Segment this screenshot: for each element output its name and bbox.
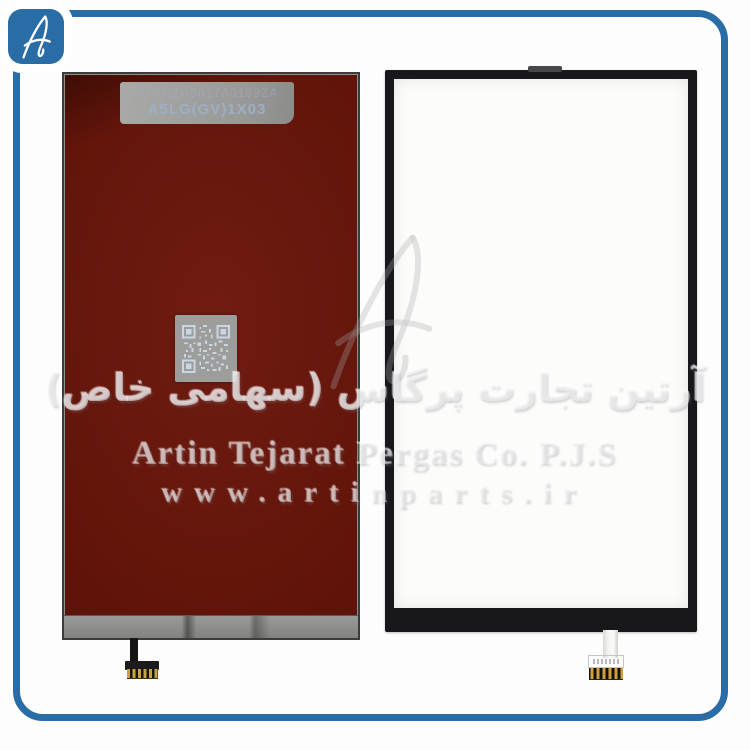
product-photo: Y7CRZG5017A0199ZA A5LG(GV)1X03	[0, 0, 750, 750]
right-flex-pins	[589, 668, 623, 680]
backlight-front-panel	[385, 70, 697, 632]
backlight-back-panel: Y7CRZG5017A0199ZA A5LG(GV)1X03	[62, 72, 360, 640]
panel-top-tab	[528, 66, 562, 72]
logo-monogram-icon	[17, 14, 55, 60]
serial-label-line1: Y7CRZG5017A0199ZA	[136, 87, 278, 101]
white-diffuser	[394, 79, 688, 608]
serial-label: Y7CRZG5017A0199ZA A5LG(GV)1X03	[120, 82, 294, 124]
qr-code-icon	[182, 325, 230, 373]
left-flex-pins	[127, 669, 158, 679]
right-flex-cable	[603, 630, 618, 658]
metal-bottom-strip	[64, 615, 358, 638]
artin-logo	[8, 9, 64, 64]
serial-label-line2: A5LG(GV)1X03	[148, 101, 267, 118]
qr-sticker	[175, 315, 237, 382]
right-flex-connector	[588, 655, 624, 668]
